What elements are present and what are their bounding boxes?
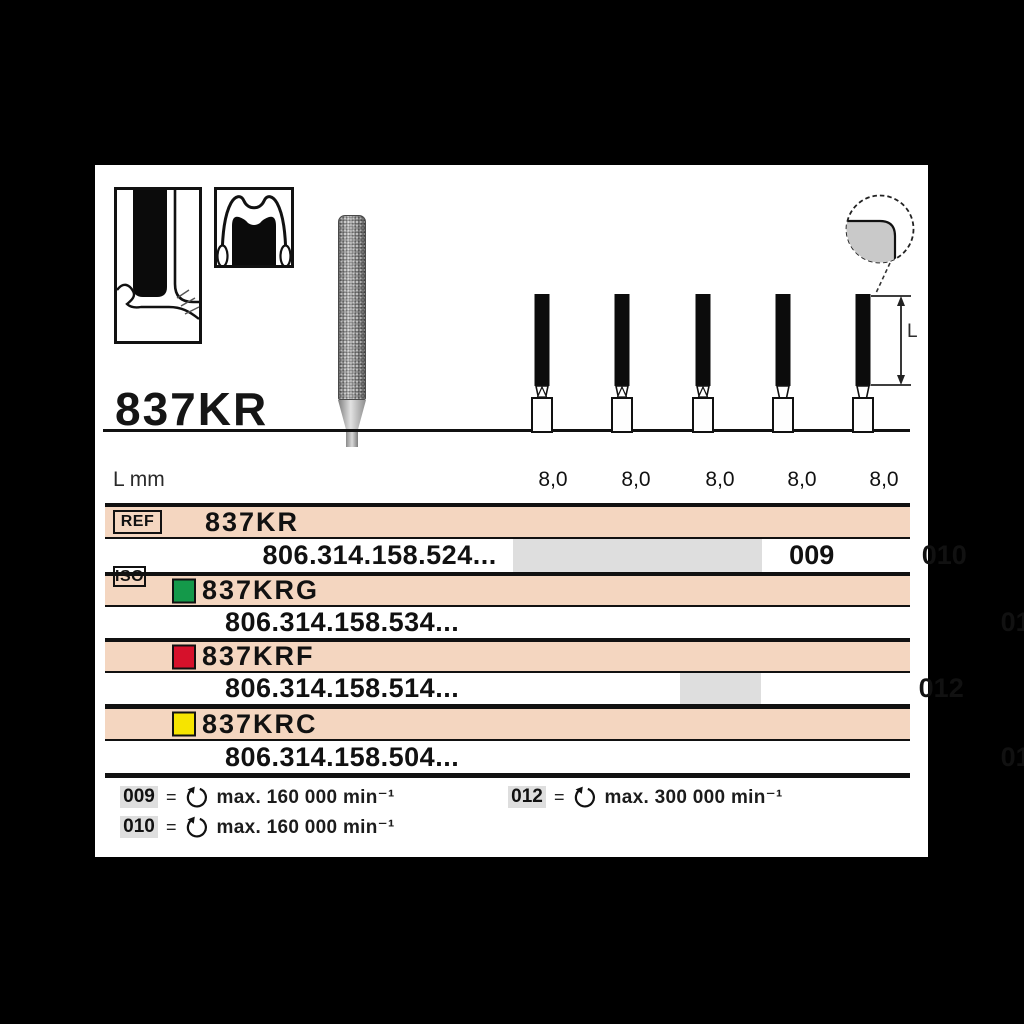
product-name: 837KR <box>205 507 299 537</box>
size-cell: 012 <box>919 673 964 703</box>
length-value: 8,0 <box>762 467 842 493</box>
speed-legend-item: 009 = max. 160 000 min⁻¹ <box>120 785 395 809</box>
tooth-drawing <box>217 190 291 265</box>
speed-limit-text: max. 160 000 min⁻¹ <box>217 786 395 809</box>
iso-code: 806.314.158.524... <box>263 540 497 570</box>
small-bur-illustration <box>681 292 725 433</box>
ref-badge: REF <box>113 510 162 534</box>
page-background: 837KR <box>0 0 1024 1024</box>
iso-row: 806.314.158.534... 014 018 <box>105 607 910 638</box>
length-value: 8,0 <box>680 467 760 493</box>
variant-row: 837KRF <box>105 642 910 671</box>
length-unit-label: L mm <box>113 467 165 493</box>
size-chip: 012 <box>508 786 546 808</box>
variant-row: 837KRC <box>105 709 910 739</box>
grit-color-swatch-red <box>172 644 196 669</box>
size-cell: 010 <box>922 540 967 570</box>
size-cell: 009 <box>789 540 834 570</box>
equals-sign: = <box>554 787 565 808</box>
product-name: 837KRC <box>202 709 318 739</box>
iso-row: 806.314.158.504... 014 <box>105 741 910 773</box>
product-table: REF 837KR ISO 806.314.158.524... 009 010… <box>105 503 910 778</box>
speed-limit-text: max. 300 000 min⁻¹ <box>605 786 783 809</box>
large-bur-shank <box>346 431 358 447</box>
bur-profile-diagram <box>114 187 202 344</box>
speed-legend-item: 012 = max. 300 000 min⁻¹ <box>508 785 783 809</box>
equals-sign: = <box>166 787 177 808</box>
rotation-speed-icon <box>573 786 596 809</box>
length-dimension-label: L <box>907 321 918 343</box>
large-bur-neck <box>338 400 366 432</box>
ref-row: REF 837KR <box>105 507 910 537</box>
shaded-size-cell <box>680 673 761 704</box>
small-bur-illustration <box>761 292 805 433</box>
grit-color-swatch-yellow <box>172 712 196 737</box>
large-bur-head <box>338 215 366 400</box>
small-bur-illustration <box>520 292 564 433</box>
product-title: 837KR <box>115 387 268 431</box>
iso-code: 806.314.158.514... <box>225 673 459 703</box>
length-value: 8,0 <box>844 467 924 493</box>
iso-row: ISO 806.314.158.524... 009 010 012 014 <box>105 539 910 572</box>
size-cell: 014 <box>1001 742 1024 772</box>
product-name: 837KRF <box>202 642 315 671</box>
shaded-size-cells <box>513 539 762 572</box>
speed-limit-text: max. 160 000 min⁻¹ <box>217 816 395 839</box>
product-name: 837KRG <box>202 576 319 605</box>
variant-row: 837KRG <box>105 576 910 605</box>
table-divider <box>105 773 910 778</box>
catalog-page: 837KR <box>95 165 928 857</box>
rounded-edge-detail-icon <box>843 192 917 266</box>
size-chip: 009 <box>120 786 158 808</box>
bur-profile-drawing <box>117 190 199 341</box>
iso-code: 806.314.158.504... <box>225 742 459 772</box>
rotation-speed-icon <box>185 786 208 809</box>
rotation-speed-icon <box>185 816 208 839</box>
iso-code: 806.314.158.534... <box>225 607 459 637</box>
equals-sign: = <box>166 817 177 838</box>
speed-legend-item: 010 = max. 160 000 min⁻¹ <box>120 815 395 839</box>
size-chip: 010 <box>120 816 158 838</box>
length-value: 8,0 <box>513 467 593 493</box>
iso-badge: ISO <box>113 566 146 587</box>
small-bur-illustration <box>841 292 885 433</box>
length-value: 8,0 <box>596 467 676 493</box>
length-values-row: L mm 8,0 8,0 8,0 8,0 8,0 <box>95 467 928 493</box>
crown-prep-diagram <box>214 187 294 268</box>
small-bur-illustration <box>600 292 644 433</box>
iso-row: 806.314.158.514... 012 <box>105 673 910 704</box>
grit-color-swatch-green <box>172 578 196 603</box>
size-cell: 014 <box>1001 607 1024 637</box>
